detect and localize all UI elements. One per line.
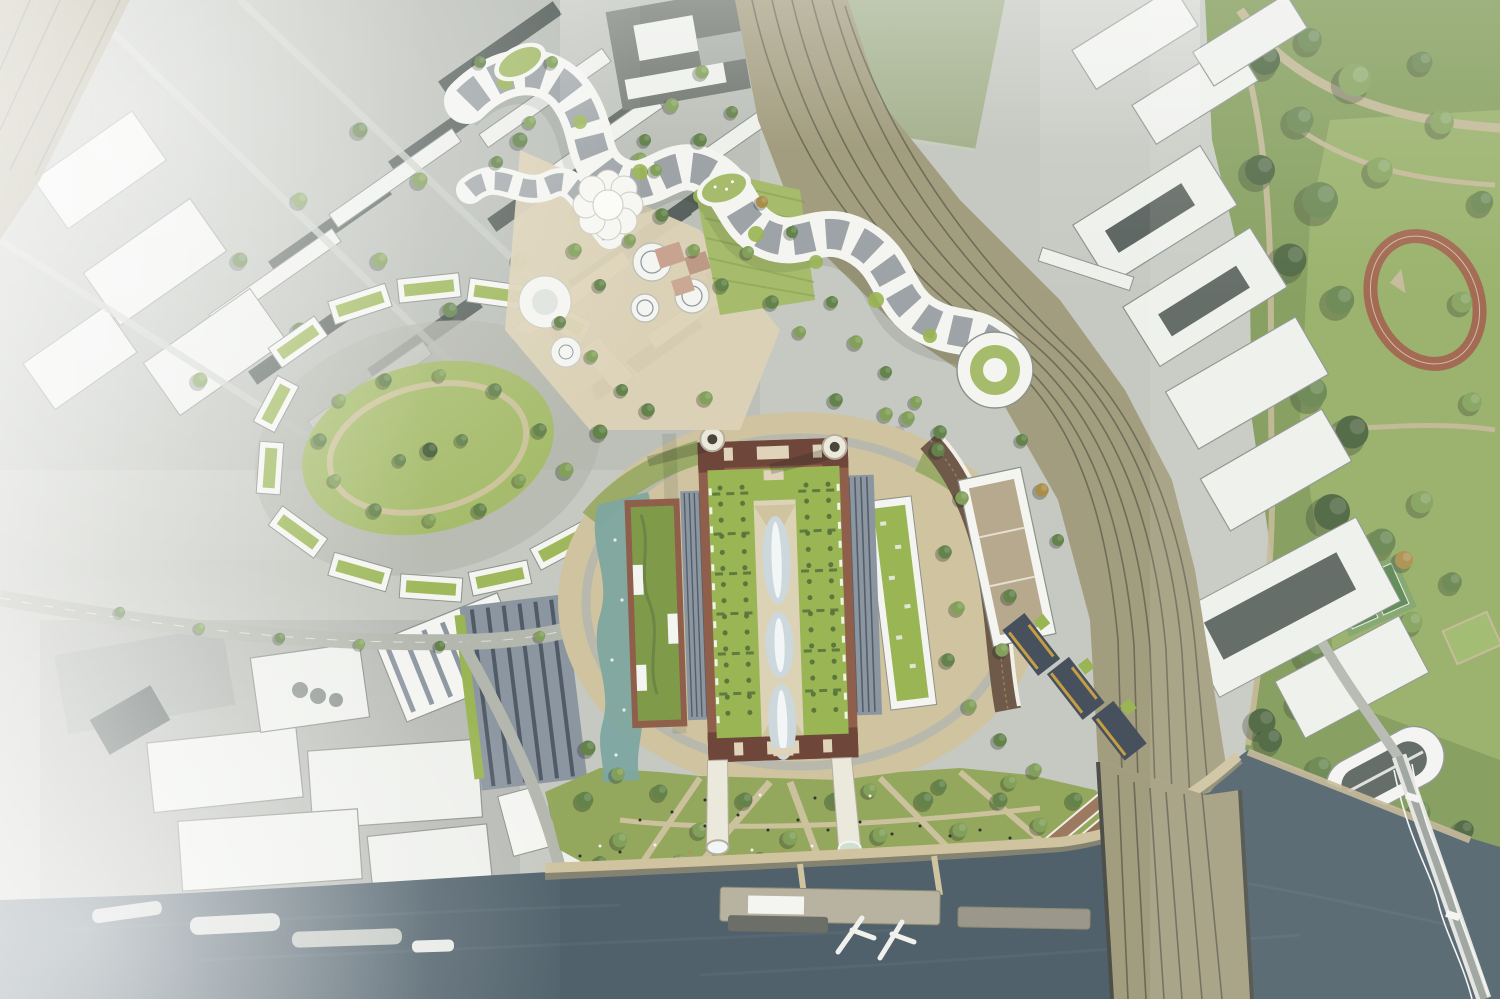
main-building bbox=[697, 437, 858, 762]
aerial-render bbox=[0, 0, 1500, 999]
chimney-southwest bbox=[704, 760, 731, 848]
round-end-tower bbox=[957, 332, 1033, 408]
